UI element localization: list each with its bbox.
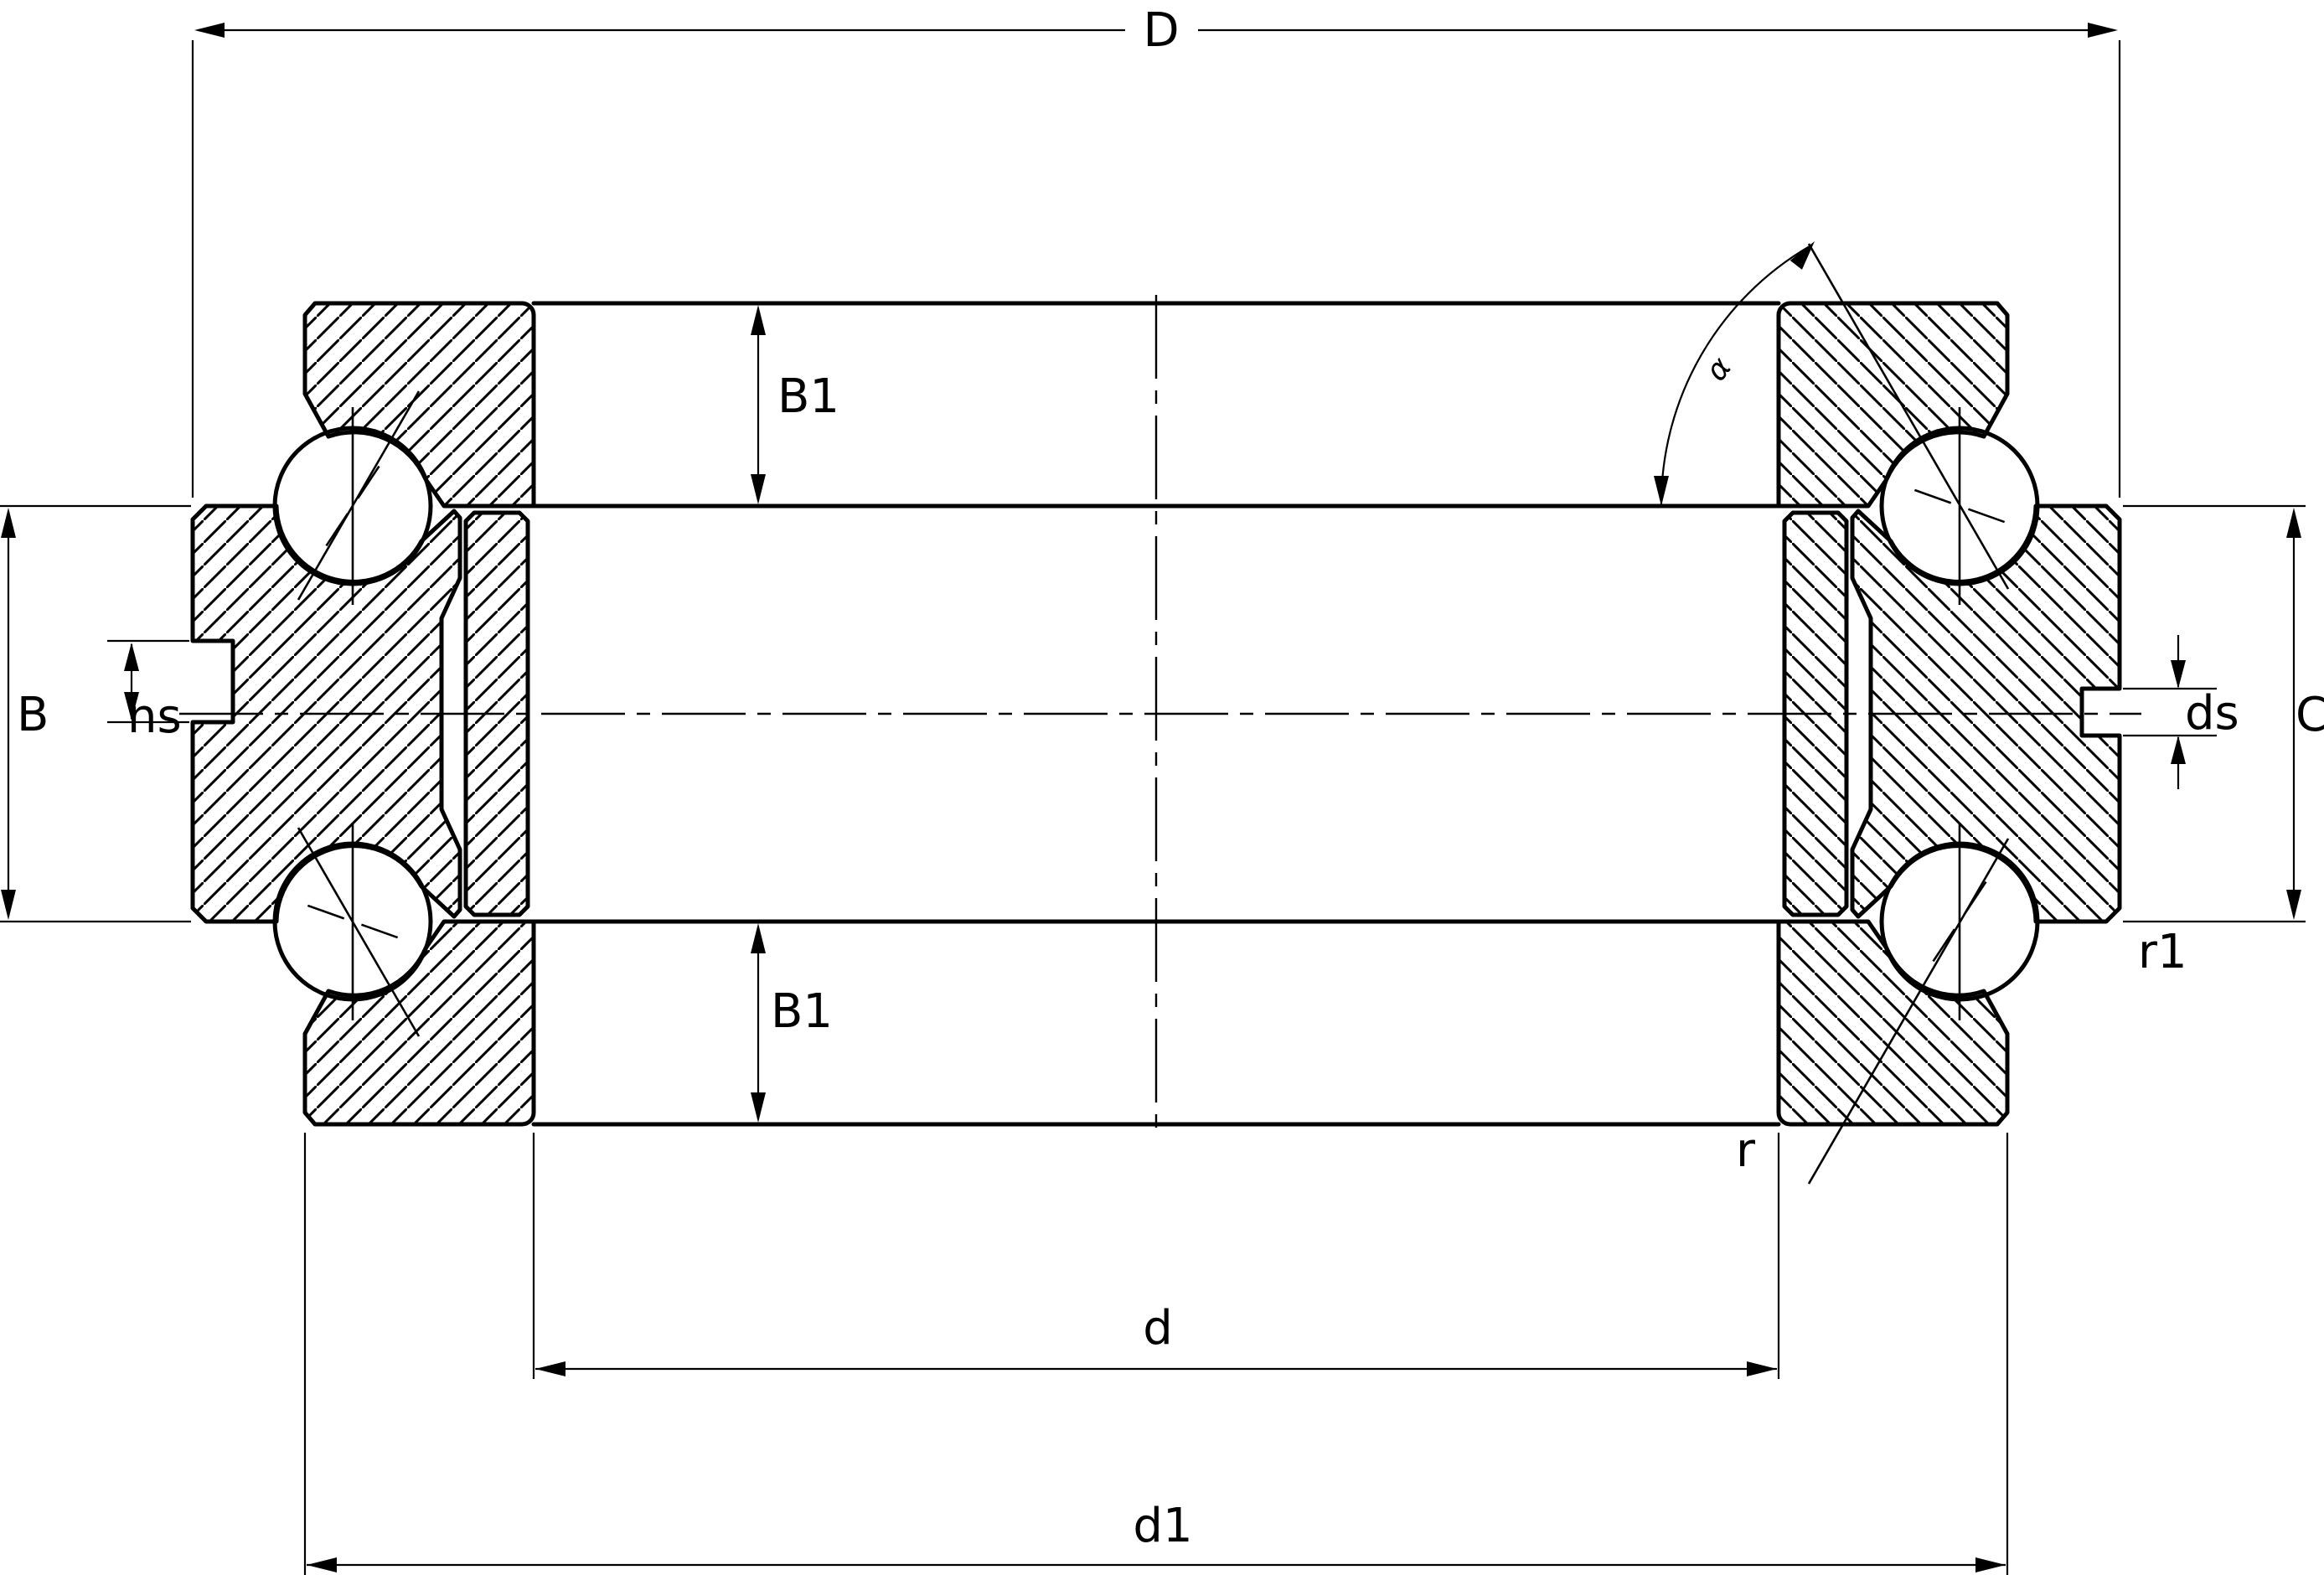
dimension-ds: ds: [2123, 635, 2239, 789]
label-B1-lower: B1: [771, 984, 833, 1039]
label-ns: ns: [127, 689, 182, 744]
shaft-washer-bottom-left-section: [305, 922, 534, 1124]
shaft-washer-top-left-section: [305, 303, 534, 506]
label-B1-upper: B1: [777, 369, 839, 424]
dimension-B1-lower: B1: [751, 923, 833, 1123]
label-r1: r1: [2138, 925, 2187, 979]
drawing-canvas: D B1 B1 B ns ds: [0, 0, 2324, 1575]
label-alpha: α: [1699, 351, 1738, 388]
label-C: C: [2296, 688, 2324, 742]
dimension-d: d: [534, 1133, 1779, 1379]
bearing-section-drawing: D B1 B1 B ns ds: [0, 0, 2324, 1575]
dimension-ns: ns: [107, 641, 189, 744]
shaft-washer-top-right-section: [1779, 303, 2007, 506]
label-D: D: [1143, 3, 1179, 58]
shaft-washer-bottom-right-section: [1779, 922, 2007, 1124]
label-B: B: [17, 688, 49, 742]
dimension-B1-upper: B1: [751, 305, 839, 504]
label-ds: ds: [2185, 686, 2239, 741]
label-r: r: [1736, 1123, 1756, 1178]
label-d: d: [1143, 1301, 1173, 1356]
label-d1: d1: [1133, 1499, 1192, 1553]
